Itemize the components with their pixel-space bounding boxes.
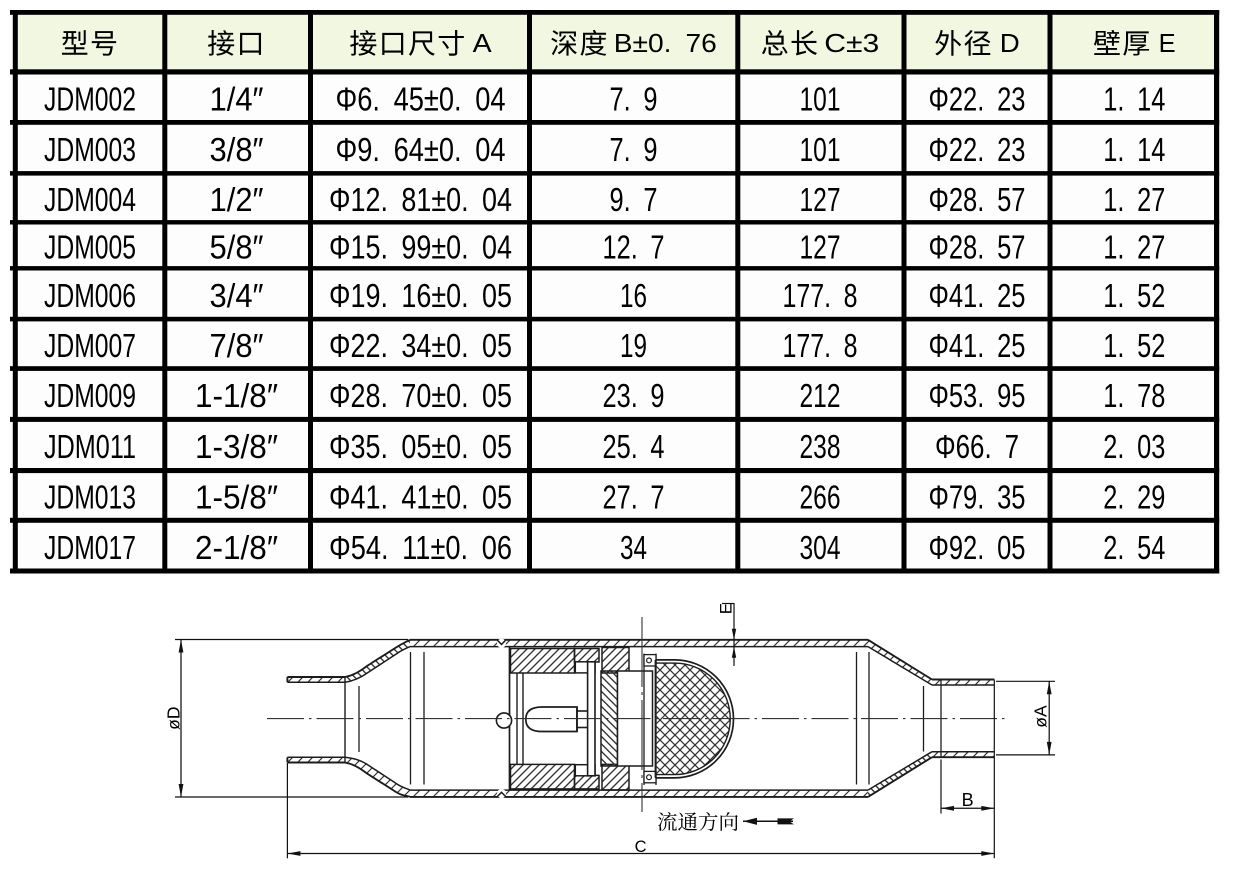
svg-text:øD: øD [163, 707, 183, 730]
svg-text:JDM007: JDM007 [44, 328, 136, 365]
svg-text:Φ92. 05: Φ92. 05 [929, 530, 1026, 567]
svg-text:JDM017: JDM017 [44, 530, 136, 567]
svg-text:7. 9: 7. 9 [610, 132, 658, 169]
svg-text:101: 101 [800, 82, 841, 119]
svg-text:JDM002: JDM002 [44, 82, 136, 119]
svg-text:25. 4: 25. 4 [603, 429, 665, 466]
svg-text:D: D [1000, 28, 1020, 58]
svg-text:Φ9. 64±0. 04: Φ9. 64±0. 04 [336, 132, 506, 169]
svg-text:Φ79. 35: Φ79. 35 [929, 480, 1026, 517]
svg-text:C±3: C±3 [824, 28, 879, 58]
svg-text:1. 52: 1. 52 [1103, 328, 1165, 365]
svg-text:3/4″: 3/4″ [210, 278, 264, 315]
svg-text:7. 9: 7. 9 [610, 82, 658, 119]
svg-text:JDM005: JDM005 [44, 230, 136, 267]
svg-text:2. 54: 2. 54 [1103, 530, 1165, 567]
svg-text:266: 266 [800, 480, 841, 517]
svg-text:E: E [1159, 28, 1176, 58]
svg-text:1. 27: 1. 27 [1103, 182, 1165, 219]
svg-text:1. 78: 1. 78 [1103, 378, 1165, 415]
svg-text:16: 16 [620, 278, 647, 315]
svg-text:101: 101 [800, 132, 841, 169]
svg-text:Φ53. 95: Φ53. 95 [929, 378, 1026, 415]
svg-text:177. 8: 177. 8 [783, 328, 858, 365]
svg-text:Φ15. 99±0. 04: Φ15. 99±0. 04 [329, 230, 512, 267]
svg-text:9. 7: 9. 7 [610, 182, 658, 219]
svg-text:JDM003: JDM003 [44, 132, 136, 169]
svg-text:19: 19 [620, 328, 647, 365]
svg-text:JDM004: JDM004 [44, 182, 136, 219]
svg-text:Φ66. 7: Φ66. 7 [935, 429, 1019, 466]
svg-text:1-1/8″: 1-1/8″ [195, 378, 278, 415]
svg-text:Φ19. 16±0. 05: Φ19. 16±0. 05 [329, 278, 512, 315]
svg-text:A: A [473, 28, 493, 58]
svg-text:212: 212 [800, 378, 841, 415]
svg-text:E: E [717, 603, 736, 614]
svg-text:34: 34 [620, 530, 647, 567]
svg-text:Φ22. 23: Φ22. 23 [929, 82, 1026, 119]
svg-text:177. 8: 177. 8 [783, 278, 858, 315]
svg-text:304: 304 [800, 530, 841, 567]
svg-text:23. 9: 23. 9 [603, 378, 665, 415]
svg-text:2. 03: 2. 03 [1103, 429, 1165, 466]
svg-text:1-5/8″: 1-5/8″ [195, 480, 278, 517]
svg-text:12. 7: 12. 7 [603, 230, 665, 267]
svg-text:2. 29: 2. 29 [1103, 480, 1165, 517]
svg-text:B: B [962, 790, 974, 810]
svg-text:JDM013: JDM013 [44, 480, 136, 517]
svg-text:Φ22. 34±0. 05: Φ22. 34±0. 05 [329, 328, 512, 365]
svg-text:Φ41. 25: Φ41. 25 [929, 278, 1026, 315]
svg-text:5/8″: 5/8″ [210, 230, 264, 267]
svg-text:1. 52: 1. 52 [1103, 278, 1165, 315]
svg-text:7/8″: 7/8″ [210, 328, 264, 365]
svg-text:238: 238 [800, 429, 841, 466]
svg-text:1. 14: 1. 14 [1103, 132, 1165, 169]
svg-text:Φ35. 05±0. 05: Φ35. 05±0. 05 [329, 429, 512, 466]
svg-text:3/8″: 3/8″ [210, 132, 264, 169]
svg-text:JDM006: JDM006 [44, 278, 136, 315]
svg-text:127: 127 [800, 230, 841, 267]
svg-text:1. 27: 1. 27 [1103, 230, 1165, 267]
svg-text:JDM009: JDM009 [44, 378, 136, 415]
svg-text:1/4″: 1/4″ [210, 82, 264, 119]
svg-text:Φ41. 41±0. 05: Φ41. 41±0. 05 [329, 480, 512, 517]
svg-text:27. 7: 27. 7 [603, 480, 665, 517]
svg-text:127: 127 [800, 182, 841, 219]
svg-text:Φ28. 57: Φ28. 57 [929, 230, 1026, 267]
svg-text:1. 14: 1. 14 [1103, 82, 1165, 119]
svg-text:Φ22. 23: Φ22. 23 [929, 132, 1026, 169]
svg-text:Φ54. 11±0. 06: Φ54. 11±0. 06 [329, 530, 512, 567]
svg-text:Φ28. 70±0. 05: Φ28. 70±0. 05 [329, 378, 512, 415]
svg-text:Φ41. 25: Φ41. 25 [929, 328, 1026, 365]
svg-text:Φ6. 45±0. 04: Φ6. 45±0. 04 [336, 82, 506, 119]
svg-text:JDM011: JDM011 [44, 429, 136, 466]
svg-text:Φ28. 57: Φ28. 57 [929, 182, 1026, 219]
svg-text:1/2″: 1/2″ [210, 182, 264, 219]
svg-text:øA: øA [1030, 705, 1050, 728]
svg-text:C: C [635, 838, 647, 856]
svg-text:Φ12. 81±0. 04: Φ12. 81±0. 04 [329, 182, 512, 219]
svg-text:1-3/8″: 1-3/8″ [195, 429, 278, 466]
svg-text:B±0. 76: B±0. 76 [614, 28, 717, 58]
svg-text:2-1/8″: 2-1/8″ [195, 530, 278, 567]
